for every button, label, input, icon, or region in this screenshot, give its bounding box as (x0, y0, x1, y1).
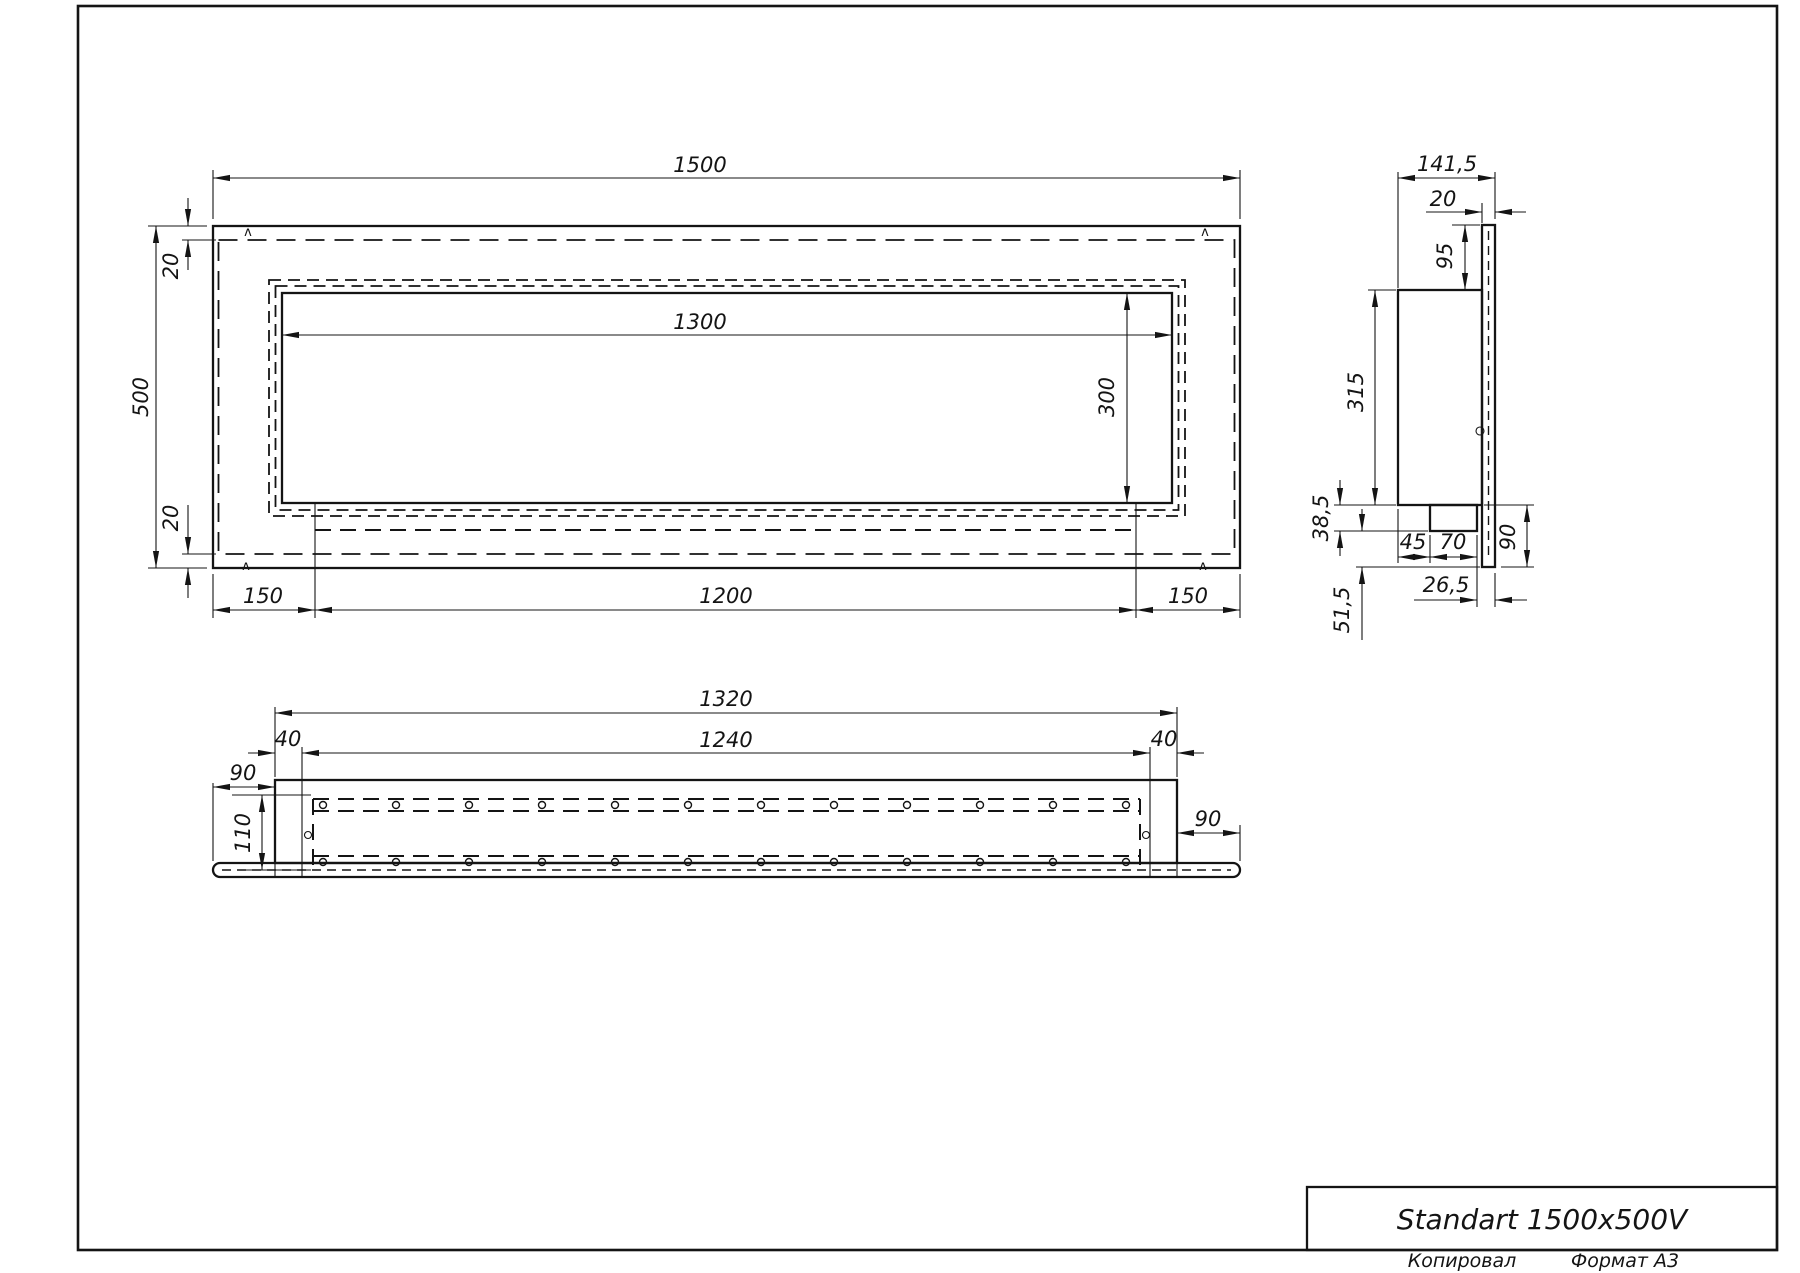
dim-right-flange: 90 (1177, 807, 1240, 861)
dim-text-70: 70 (1440, 530, 1467, 554)
bottom-hole-left-end (305, 832, 312, 839)
dim-text-141-5: 141,5 (1417, 152, 1477, 176)
dim-text-90-right: 90 (1195, 807, 1222, 831)
dim-text-90-side: 90 (1496, 524, 1520, 551)
dim-opening-height: 300 (1095, 293, 1127, 503)
drawing-sheet: ʌ ʌ ʌ ʌ 1500 1300 500 20 (0, 0, 1800, 1273)
dim-text-51-5: 51,5 (1330, 587, 1354, 634)
dim-text-1500: 1500 (673, 153, 726, 177)
product-name: Standart 1500x500V (1397, 1203, 1689, 1236)
dim-text-45: 45 (1400, 530, 1427, 554)
side-body (1398, 290, 1482, 505)
title-block: Standart 1500x500V (1307, 1187, 1777, 1250)
format-label: Формат А3 (1571, 1250, 1679, 1272)
dim-opening-width: 1300 (282, 310, 1172, 335)
dim-overall-width: 1500 (213, 153, 1240, 219)
front-opening (282, 293, 1172, 503)
dim-text-1320: 1320 (699, 687, 752, 711)
dim-text-95: 95 (1433, 243, 1457, 270)
dim-text-1300: 1300 (673, 310, 726, 334)
dim-plate-projection: 26,5 (1414, 573, 1527, 607)
dim-text-26-5: 26,5 (1423, 573, 1470, 597)
dim-text-500: 500 (129, 377, 153, 417)
bend-mark-top-right: ʌ (1201, 225, 1209, 240)
bottom-hole-row-top (320, 802, 1130, 809)
dim-text-40-left: 40 (275, 727, 302, 751)
dim-bottom-inset: 20 (159, 505, 216, 598)
dim-channel-depth: 110 (231, 795, 311, 870)
bend-mark-bottom-left: ʌ (242, 559, 250, 574)
dim-text-38-5: 38,5 (1309, 495, 1333, 542)
front-opening-offset-inner (276, 286, 1179, 510)
dim-text-1240: 1240 (699, 728, 752, 752)
dim-text-20-top: 20 (159, 253, 183, 280)
bend-mark-top-left: ʌ (244, 225, 252, 240)
front-outer-frame (213, 226, 1240, 568)
sheet-footer: Копировал Формат А3 (1408, 1250, 1679, 1272)
front-view: ʌ ʌ ʌ ʌ 1500 1300 500 20 (129, 153, 1240, 618)
bottom-view: 1320 1240 40 40 90 90 (213, 687, 1240, 877)
dim-text-20-plate: 20 (1430, 187, 1457, 211)
dim-text-40-right: 40 (1151, 727, 1178, 751)
dim-text-1200: 1200 (699, 584, 752, 608)
dim-top-inset: 20 (159, 198, 216, 279)
bottom-channel-hidden (313, 799, 1140, 869)
dim-text-90-left: 90 (230, 761, 257, 785)
drawing-canvas: ʌ ʌ ʌ ʌ 1500 1300 500 20 (0, 0, 1800, 1273)
dim-text-315: 315 (1344, 372, 1368, 412)
bottom-box (275, 780, 1177, 863)
dim-text-110: 110 (231, 813, 255, 853)
dim-bottom-chain: 150 1200 150 (213, 503, 1240, 618)
front-opening-offset-outer (269, 280, 1185, 516)
dim-top-offset: 95 (1433, 225, 1480, 290)
bottom-hole-right-end (1143, 832, 1150, 839)
bend-mark-bottom-right: ʌ (1199, 559, 1207, 574)
dim-text-20-bottom: 20 (159, 505, 183, 532)
sheet-border (78, 6, 1777, 1250)
dim-text-150-right: 150 (1168, 584, 1208, 608)
front-fold-hidden-line (219, 240, 1235, 554)
dim-channel-length: 1240 40 40 (248, 727, 1204, 877)
dim-lower-flange-height: 90 (1484, 505, 1534, 567)
dim-plate-thickness: 20 (1426, 187, 1526, 223)
dim-text-300: 300 (1095, 377, 1119, 417)
side-burner-tray (1430, 505, 1477, 531)
side-view: 141,5 20 95 315 38,5 (1309, 152, 1534, 640)
dim-text-150-left: 150 (243, 584, 283, 608)
copied-by-label: Копировал (1408, 1250, 1517, 1272)
dim-body-height: 315 (1334, 290, 1396, 505)
